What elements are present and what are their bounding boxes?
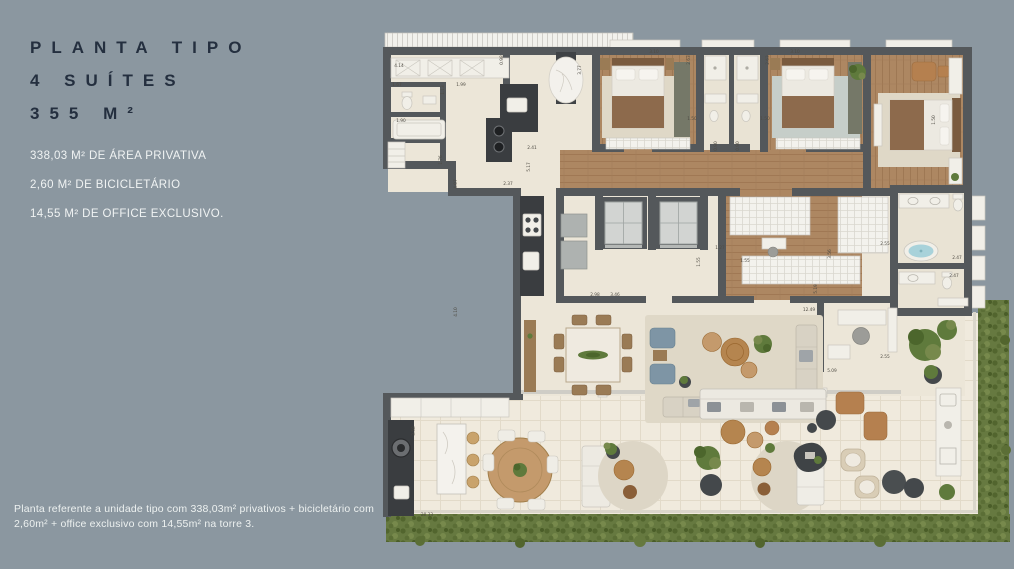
bbq-corner [388, 420, 414, 516]
dimension-label: 2.47 [949, 273, 959, 279]
dimension-label: 3.56 [827, 249, 833, 259]
plan-title-line-2: 4 SUÍTES [30, 71, 370, 91]
window-baths [702, 40, 754, 48]
suite2-nightstand [770, 58, 780, 70]
wardrobe-b [742, 256, 860, 284]
dimension-label: 4.14 [394, 63, 404, 69]
dimension-label: 3.10 [790, 49, 800, 55]
outdoor-kitchen [936, 388, 961, 476]
window-suite1 [610, 40, 680, 48]
dimension-label: 1.50 [931, 115, 937, 125]
dark-pouf [882, 470, 906, 494]
floor-plan-page: 4.140.983.771.671.131.991.902.411.765.17… [0, 0, 1014, 569]
dimension-label: 1.76 [438, 155, 444, 165]
double-sink-counter [899, 194, 949, 208]
terrace-rug-a [598, 441, 668, 511]
office-desk [838, 310, 886, 325]
dimension-label: 5.19 [813, 284, 819, 294]
info-panel: PLANTA TIPO 4 SUÍTES 355 M² 338,03 M² DE… [30, 38, 370, 237]
dimension-label: 2.63 [765, 55, 771, 65]
cooktop [523, 214, 541, 236]
office-shelf [888, 308, 897, 352]
suite1-bed [612, 58, 664, 128]
terrace-u-sofa [700, 389, 826, 419]
office-cabinet [828, 345, 850, 359]
wc-sink [423, 96, 436, 104]
dimension-label: 1.27 [715, 245, 725, 251]
suite1-wardrobe [674, 62, 690, 137]
kitchen-sink-2 [523, 252, 539, 270]
master-bench [874, 104, 882, 146]
kitchen-counter-lower [520, 196, 544, 296]
dimension-label: 20.33 [421, 512, 434, 518]
dimension-label: 5.09 [827, 368, 837, 374]
elevator-2 [655, 197, 702, 249]
bathtub [904, 241, 938, 261]
master-bed [890, 98, 961, 152]
suite-2 [770, 58, 866, 149]
dimension-label: 3.10 [649, 49, 659, 55]
terrace-railing-bottom [390, 510, 1008, 513]
washer-dryer-appliances [396, 60, 484, 76]
dimension-label: 3.77 [577, 65, 583, 75]
foyer [549, 57, 583, 103]
dimension-label: 1.99 [456, 82, 466, 88]
window-suite2 [780, 40, 850, 48]
dimension-label: 1.90 [396, 118, 406, 124]
linen-shelves [388, 142, 405, 168]
detail-office: 14,55 M² DE OFFICE EXCLUSIVO. [30, 208, 370, 220]
dimension-label: 2.55 [880, 354, 890, 360]
lavabo-sink [899, 272, 935, 284]
kitchen-island [486, 118, 512, 162]
dimension-label: 1.50 [687, 116, 697, 122]
dimension-label: 1.55 [740, 258, 750, 264]
suite2-bed [782, 58, 834, 128]
suite1-nightstand [666, 58, 674, 70]
kitchen-sink [507, 98, 527, 112]
dimension-label: 3.58 [411, 426, 417, 436]
dimension-label: 2.37 [503, 181, 513, 187]
dimension-label: 1.50 [760, 116, 770, 122]
office-chair [853, 328, 870, 345]
service-shaft-2 [561, 241, 587, 269]
dimension-label: 4.07 [453, 179, 459, 189]
suite-1 [600, 58, 690, 149]
vanity-chair [768, 247, 778, 257]
master-toilet [953, 194, 963, 211]
pergola-louver-strip [385, 33, 633, 47]
dimension-label: 0.90 [735, 141, 741, 151]
dimension-label: 2.41 [527, 145, 537, 151]
master-shelf [949, 58, 962, 94]
side-table [653, 350, 667, 361]
dimension-label: 0.90 [713, 141, 719, 151]
plan-title-line-3: 355 M² [30, 104, 370, 124]
service-shaft [561, 214, 587, 237]
suite1-closet [606, 138, 690, 149]
dimension-label: 2.98 [590, 292, 600, 298]
buffet-sideboard [524, 320, 536, 392]
window-master [886, 40, 952, 48]
dining-table [566, 328, 620, 382]
area-details: 338,03 M² DE ÁREA PRIVATIVA 2,60 M² DE B… [30, 150, 370, 220]
dimension-label: 2.47 [952, 255, 962, 261]
dimension-label: 1.13 [440, 85, 446, 95]
foyer-round-table [549, 57, 583, 103]
dimension-label: 1.55 [696, 257, 702, 267]
disclaimer-note: Planta referente a unidade tipo com 338,… [14, 502, 376, 531]
terrace-cabinet [391, 398, 509, 417]
terrace-railing-right [973, 312, 976, 512]
dimension-label: 0.98 [499, 55, 505, 65]
detail-bike-storage: 2,60 M² DE BICICLETÁRIO [30, 179, 370, 191]
elevator-1 [600, 197, 647, 249]
master-plant [951, 173, 959, 181]
wc-toilet [402, 92, 412, 110]
dimension-label: 2.63 [686, 55, 692, 65]
dimension-label: 3.46 [610, 292, 620, 298]
dimension-label: 12.49 [803, 307, 816, 313]
suite2-closet [776, 138, 860, 149]
terrace-island-bar [437, 424, 479, 494]
dimension-label: 5.17 [526, 162, 532, 172]
suite1-nightstand [600, 58, 610, 70]
detail-private-area: 338,03 M² DE ÁREA PRIVATIVA [30, 150, 370, 162]
lavabo-bench [938, 298, 968, 306]
dimension-label: 4.10 [453, 307, 459, 317]
dimension-label: 1.67 [392, 82, 402, 88]
plan-title-line-1: PLANTA TIPO [30, 38, 370, 58]
wardrobe-a [730, 197, 810, 235]
dark-side-table [807, 423, 817, 433]
dimension-label: 2.55 [880, 241, 890, 247]
floor-plant-pot [679, 376, 691, 388]
